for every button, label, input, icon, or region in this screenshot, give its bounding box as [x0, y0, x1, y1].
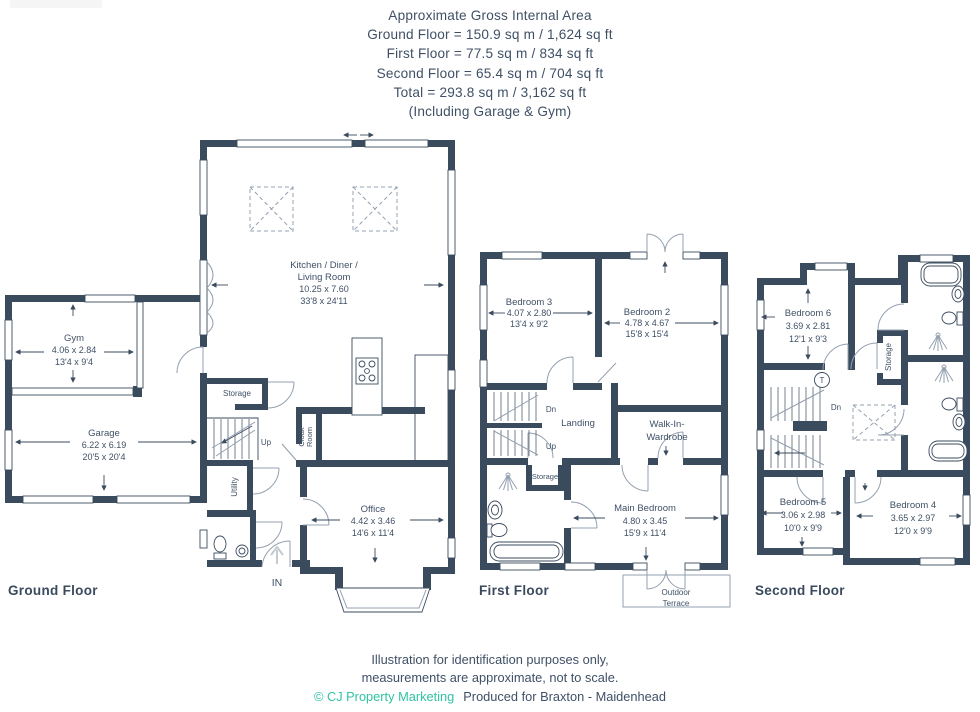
- ground-floor-plan: Kitchen / Diner / Living Room 10.25 x 7.…: [0, 130, 470, 630]
- terrace-label: Terrace: [663, 599, 690, 608]
- garage-dimensions: 6.22 x 6.19: [82, 440, 127, 450]
- toilet-icon: [942, 312, 963, 325]
- gym-label: Gym: [64, 333, 84, 344]
- stairs-up-label: Up: [261, 438, 272, 447]
- floorplan-page: Approximate Gross Internal Area Ground F…: [0, 0, 980, 712]
- entry-arrow-icon: [271, 547, 283, 564]
- header-line: (Including Garage & Gym): [0, 102, 980, 121]
- disclaimer-line: Illustration for identification purposes…: [0, 651, 980, 669]
- bath-icon: [490, 542, 563, 561]
- header-line: First Floor = 77.5 sq m / 834 sq ft: [0, 44, 980, 63]
- bedroom5-dimensions: 3.06 x 2.98: [781, 510, 826, 520]
- header-line: Second Floor = 65.4 sq m / 704 sq ft: [0, 64, 980, 83]
- sink-icon: [236, 545, 248, 557]
- wc-fixtures: [214, 536, 248, 559]
- cloak-room-label: Room: [305, 427, 314, 447]
- sink-icon: [488, 501, 502, 519]
- skylight-icon: [250, 187, 293, 231]
- bath-icon: [929, 441, 967, 461]
- bedroom4-label: Bedroom 4: [890, 500, 936, 511]
- bedroom4-dimensions: 3.65 x 2.97: [891, 513, 936, 523]
- garage-label: Garage: [88, 428, 120, 439]
- storage-label: Storage: [884, 342, 893, 371]
- walk-in-wardrobe-label: Walk-In-: [649, 419, 684, 430]
- bedroom6-dimensions: 3.69 x 2.81: [786, 321, 831, 331]
- first-floor-plan: Outdoor Terrace Bedroom 3 4.07 x 2.80 13…: [470, 225, 740, 620]
- stairs-down: [771, 387, 827, 468]
- office-dimensions: 4.42 x 3.46: [351, 516, 396, 526]
- bedroom3-label: Bedroom 3: [506, 297, 552, 308]
- landing-label: Landing: [561, 418, 595, 429]
- bedroom4-dimensions: 12'0 x 9'9: [894, 526, 932, 536]
- gym-dimensions: 4.06 x 2.84: [52, 345, 97, 355]
- bay-window: [336, 588, 430, 612]
- walk-in-wardrobe-label: Wardrobe: [646, 432, 687, 443]
- disclaimer-line: measurements are approximate, not to sca…: [0, 669, 980, 687]
- disclaimer: Illustration for identification purposes…: [0, 651, 980, 706]
- kitchen-label: Living Room: [298, 272, 351, 283]
- shower-icon: [499, 473, 517, 491]
- bedroom2-dimensions: 15'8 x 15'4: [626, 329, 669, 339]
- main-bedroom-dimensions: 4.80 x 3.45: [623, 516, 668, 526]
- kitchen-label: Kitchen / Diner /: [290, 260, 358, 271]
- marketing-credit: © CJ Property Marketing: [314, 689, 454, 704]
- gym-dimensions: 13'4 x 9'4: [55, 357, 93, 367]
- stairs-up-label: Up: [546, 442, 557, 451]
- ground-floor-label: Ground Floor: [8, 583, 98, 598]
- toilet-icon: [487, 524, 507, 538]
- stairs-up: [207, 418, 258, 460]
- entrance-label: IN: [272, 577, 283, 589]
- bedroom2-dimensions: 4.78 x 4.67: [625, 318, 670, 328]
- kitchen-dimensions: 33'8 x 24'11: [300, 296, 347, 306]
- first-floor-label: First Floor: [479, 583, 549, 598]
- tank-icon: T: [815, 373, 830, 388]
- shower-icon: [935, 365, 953, 383]
- outdoor-terrace: Outdoor Terrace: [623, 575, 730, 608]
- tank-label: T: [820, 376, 825, 385]
- terrace-label: Outdoor: [662, 588, 691, 597]
- storage-label: Storage: [532, 472, 558, 481]
- credit-line: © CJ Property MarketingProduced for Brax…: [0, 688, 980, 706]
- bedroom5-dimensions: 10'0 x 9'9: [784, 523, 822, 533]
- bedroom6-label: Bedroom 6: [785, 308, 831, 319]
- stairs-down: [487, 392, 542, 456]
- toilet-icon: [214, 536, 226, 559]
- header-line: Approximate Gross Internal Area: [0, 6, 980, 25]
- stairs-down-label: Dn: [546, 405, 556, 414]
- toilet-icon: [942, 398, 963, 411]
- bedroom3-dimensions: 4.07 x 2.80: [507, 308, 552, 318]
- sink-icon: [952, 286, 964, 302]
- main-bedroom-dimensions: 15'9 x 11'4: [624, 528, 666, 538]
- stairs-down-label: Dn: [831, 403, 841, 412]
- header-line: Total = 293.8 sq m / 3,162 sq ft: [0, 83, 980, 102]
- utility-label: Utility: [230, 477, 239, 497]
- bath-icon: [921, 263, 961, 286]
- second-floor-label: Second Floor: [755, 583, 845, 598]
- garage-dimensions: 20'5 x 20'4: [83, 452, 126, 462]
- office-dimensions: 14'6 x 11'4: [352, 528, 394, 538]
- main-bedroom-label: Main Bedroom: [614, 503, 676, 514]
- bedroom3-dimensions: 13'4 x 9'2: [510, 319, 548, 329]
- kitchen-dimensions: 10.25 x 7.60: [299, 284, 349, 294]
- bedroom6-dimensions: 12'1 x 9'3: [789, 334, 827, 344]
- produced-for: Produced for Braxton - Maidenhead: [463, 689, 666, 704]
- second-floor-plan: T: [745, 245, 980, 575]
- header-line: Ground Floor = 150.9 sq m / 1,624 sq ft: [0, 25, 980, 44]
- area-summary: Approximate Gross Internal Area Ground F…: [0, 6, 980, 121]
- office-label: Office: [361, 504, 386, 515]
- kitchen-island: [352, 338, 382, 415]
- skylight-icon: [353, 187, 397, 231]
- bedroom2-label: Bedroom 2: [624, 307, 670, 318]
- bedroom5-label: Bedroom 5: [780, 497, 826, 508]
- storage-label: Storage: [223, 389, 252, 398]
- shower-icon: [929, 333, 947, 351]
- sink-icon: [953, 414, 965, 430]
